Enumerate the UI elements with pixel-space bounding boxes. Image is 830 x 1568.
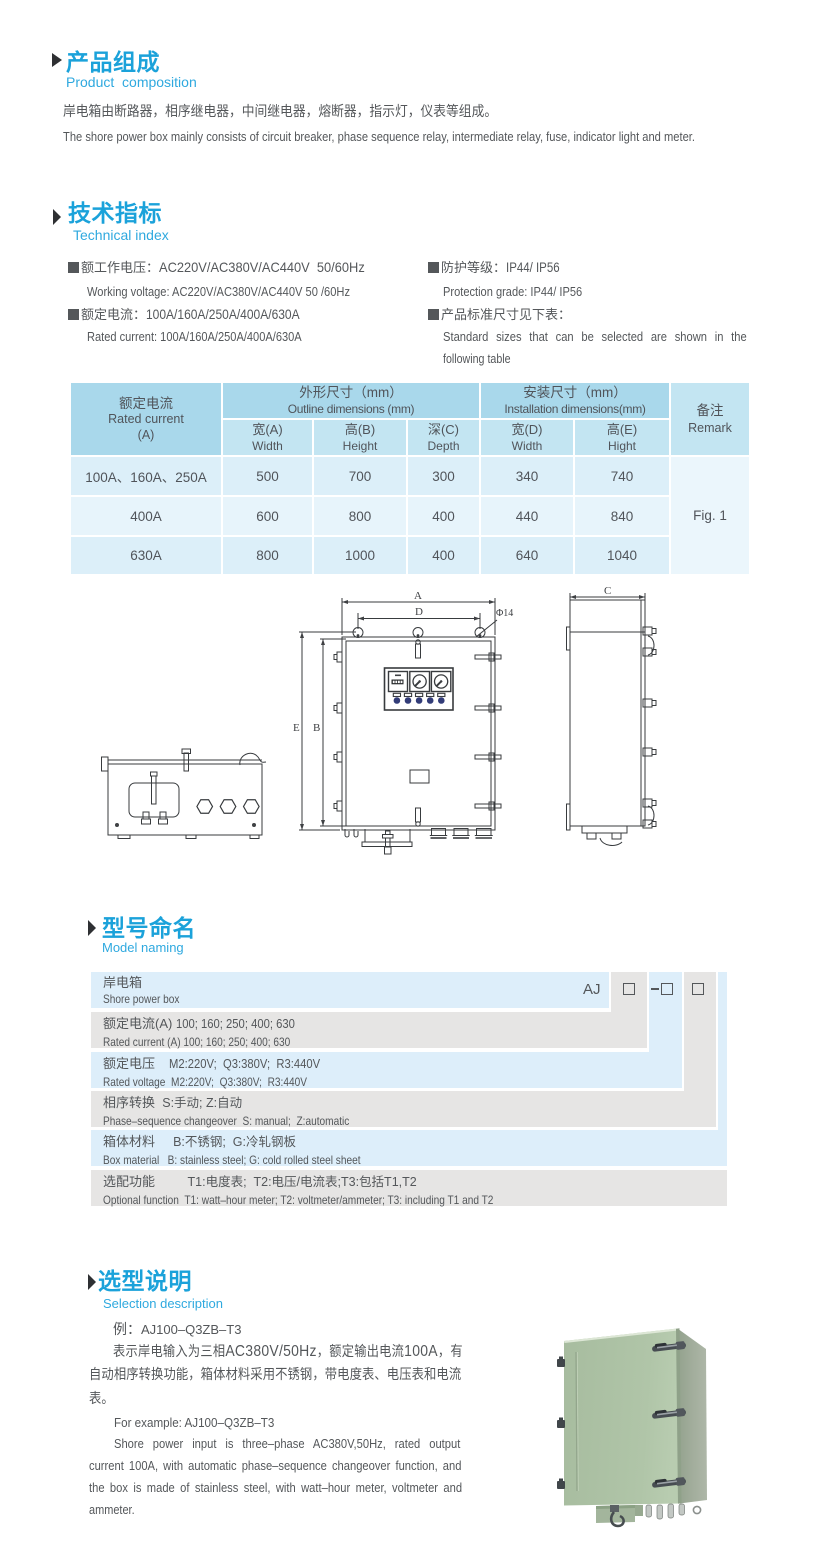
svg-text:A: A <box>414 590 422 602</box>
svg-text:D: D <box>415 606 423 618</box>
svg-text:B: B <box>313 722 320 734</box>
svg-text:Φ14: Φ14 <box>496 608 513 619</box>
svg-text:E: E <box>293 722 300 734</box>
svg-text:C: C <box>604 585 611 597</box>
